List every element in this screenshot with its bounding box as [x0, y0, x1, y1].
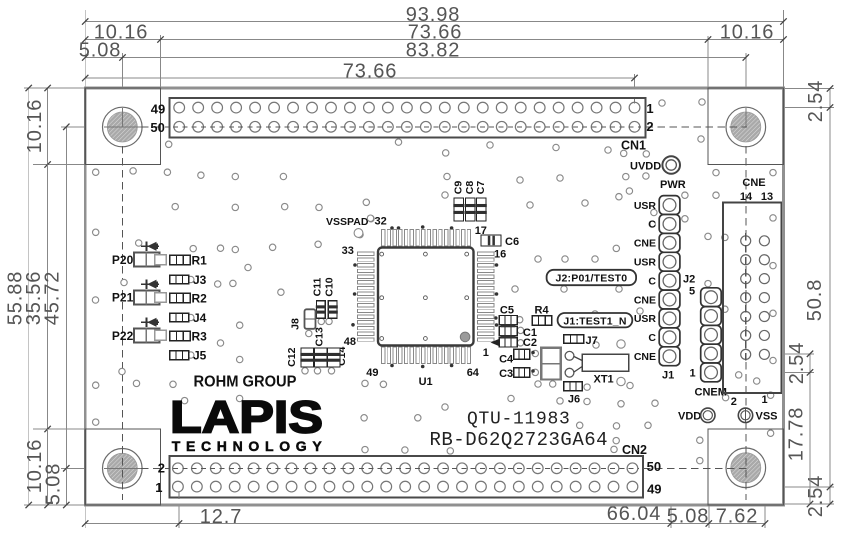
svg-text:VSS: VSS: [756, 411, 778, 423]
svg-text:J3: J3: [193, 273, 207, 287]
svg-text:16: 16: [494, 249, 506, 261]
svg-text:64: 64: [467, 367, 480, 379]
svg-text:2.54: 2.54: [805, 80, 827, 123]
svg-text:C11: C11: [312, 278, 324, 297]
svg-text:C9: C9: [452, 181, 464, 195]
svg-text:ROHM GROUP: ROHM GROUP: [194, 374, 297, 391]
svg-text:50.8: 50.8: [804, 279, 826, 322]
svg-text:1: 1: [646, 101, 653, 116]
svg-text:RB-D62Q2723GA64: RB-D62Q2723GA64: [430, 429, 609, 451]
svg-text:C: C: [648, 275, 656, 287]
svg-text:2: 2: [158, 461, 165, 476]
svg-text:R3: R3: [192, 329, 208, 343]
svg-text:50: 50: [150, 120, 164, 135]
svg-text:R2: R2: [192, 291, 208, 305]
svg-text:J6: J6: [568, 394, 580, 406]
svg-text:1: 1: [483, 347, 489, 359]
svg-text:CNE: CNE: [634, 294, 656, 306]
svg-text:C6: C6: [505, 236, 519, 248]
svg-text:5.08: 5.08: [667, 506, 710, 528]
svg-text:12.7: 12.7: [200, 506, 243, 528]
svg-text:P21: P21: [112, 291, 134, 305]
svg-text:5.08: 5.08: [79, 40, 122, 62]
svg-text:R1: R1: [192, 253, 208, 267]
svg-text:USR: USR: [634, 257, 657, 269]
svg-text:CNEM: CNEM: [695, 387, 727, 399]
svg-text:J7: J7: [586, 335, 598, 347]
svg-text:CNE: CNE: [634, 238, 656, 250]
svg-text:83.82: 83.82: [406, 40, 461, 62]
svg-text:45.72: 45.72: [42, 271, 64, 326]
svg-text:C: C: [648, 219, 656, 231]
svg-text:49: 49: [151, 102, 165, 117]
svg-text:5.08: 5.08: [43, 463, 65, 506]
svg-text:J2:P01/TEST0: J2:P01/TEST0: [555, 273, 627, 285]
svg-text:2.54: 2.54: [805, 475, 827, 518]
svg-text:J1:TEST1_N: J1:TEST1_N: [563, 315, 626, 327]
svg-text:10.16: 10.16: [24, 99, 46, 154]
svg-text:C12: C12: [286, 347, 298, 366]
svg-text:J2: J2: [683, 274, 695, 286]
svg-text:R4: R4: [535, 305, 550, 317]
svg-text:50: 50: [647, 459, 661, 474]
svg-text:2: 2: [646, 119, 653, 134]
svg-text:PWR: PWR: [660, 179, 686, 191]
svg-text:J4: J4: [193, 311, 207, 325]
svg-text:P20: P20: [112, 253, 134, 267]
svg-text:J1: J1: [662, 369, 674, 381]
svg-text:U1: U1: [419, 376, 433, 388]
svg-text:49: 49: [366, 367, 378, 379]
svg-text:33: 33: [342, 245, 354, 257]
svg-text:CN2: CN2: [622, 443, 647, 457]
svg-text:1: 1: [690, 368, 696, 380]
svg-text:CNE: CNE: [742, 177, 765, 189]
svg-text:10.16: 10.16: [720, 22, 775, 44]
svg-text:C4: C4: [499, 354, 514, 366]
svg-text:17.78: 17.78: [786, 407, 808, 462]
svg-text:32: 32: [375, 216, 387, 228]
svg-text:XT1: XT1: [594, 374, 614, 386]
svg-text:48: 48: [344, 336, 356, 348]
svg-text:CNE: CNE: [634, 351, 656, 363]
svg-text:C3: C3: [499, 368, 513, 380]
svg-text:P22: P22: [112, 329, 134, 343]
svg-text:C2: C2: [523, 337, 537, 349]
svg-text:J5: J5: [193, 349, 207, 363]
svg-text:73.66: 73.66: [343, 61, 398, 83]
svg-text:C5: C5: [500, 305, 514, 317]
svg-text:VSSPAD: VSSPAD: [326, 216, 369, 228]
svg-text:C: C: [648, 332, 656, 344]
svg-text:2.54: 2.54: [786, 342, 808, 385]
svg-text:49: 49: [647, 482, 661, 497]
svg-text:USR: USR: [634, 313, 657, 325]
svg-text:7.62: 7.62: [716, 506, 759, 528]
svg-text:13: 13: [761, 191, 773, 203]
svg-text:VDD: VDD: [678, 411, 701, 423]
svg-text:J8: J8: [290, 318, 302, 330]
svg-text:5: 5: [689, 286, 695, 298]
svg-text:QTU-11983: QTU-11983: [467, 410, 571, 430]
svg-text:C13: C13: [314, 327, 326, 346]
svg-text:USR: USR: [634, 200, 657, 212]
svg-text:14: 14: [740, 191, 753, 203]
svg-text:C7: C7: [475, 181, 487, 195]
svg-text:LAPIS: LAPIS: [170, 392, 323, 443]
svg-text:2: 2: [731, 396, 737, 408]
svg-text:1: 1: [761, 394, 767, 406]
svg-text:1: 1: [155, 480, 162, 495]
svg-text:UVDD: UVDD: [630, 161, 661, 173]
svg-text:C10: C10: [323, 277, 335, 296]
